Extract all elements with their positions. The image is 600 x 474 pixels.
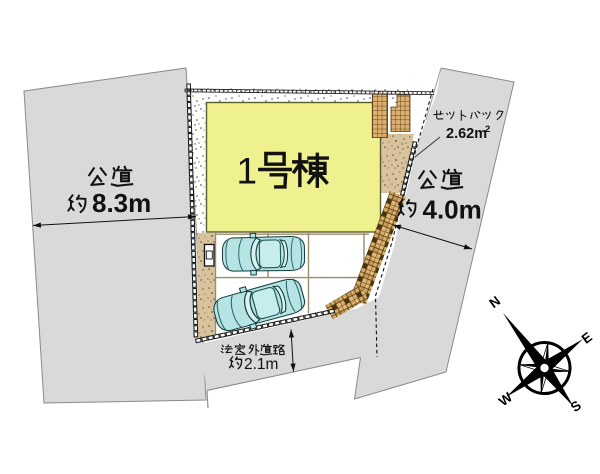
svg-text:2.1m: 2.1m bbox=[244, 356, 278, 373]
svg-text:8.3m: 8.3m bbox=[92, 188, 151, 218]
svg-text:2: 2 bbox=[485, 124, 490, 135]
svg-text:4.0m: 4.0m bbox=[423, 195, 482, 225]
svg-text:2.62m: 2.62m bbox=[446, 126, 487, 142]
svg-text:1: 1 bbox=[237, 151, 258, 192]
